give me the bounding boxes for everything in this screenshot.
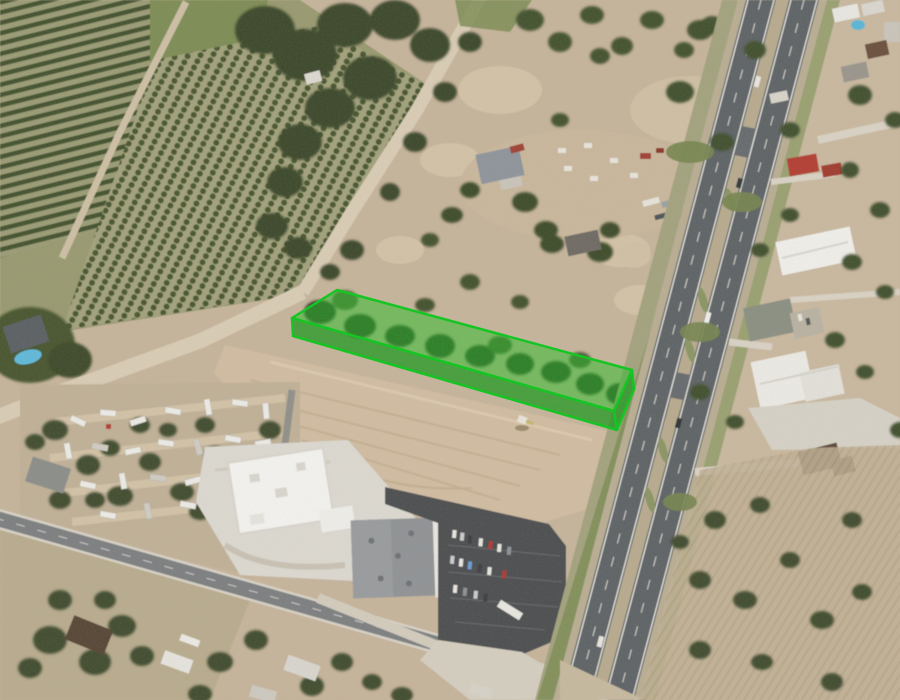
aerial-photo-canvas[interactable] (0, 0, 900, 700)
photo-grain-overlay (0, 0, 900, 700)
aerial-photo[interactable] (0, 0, 900, 700)
